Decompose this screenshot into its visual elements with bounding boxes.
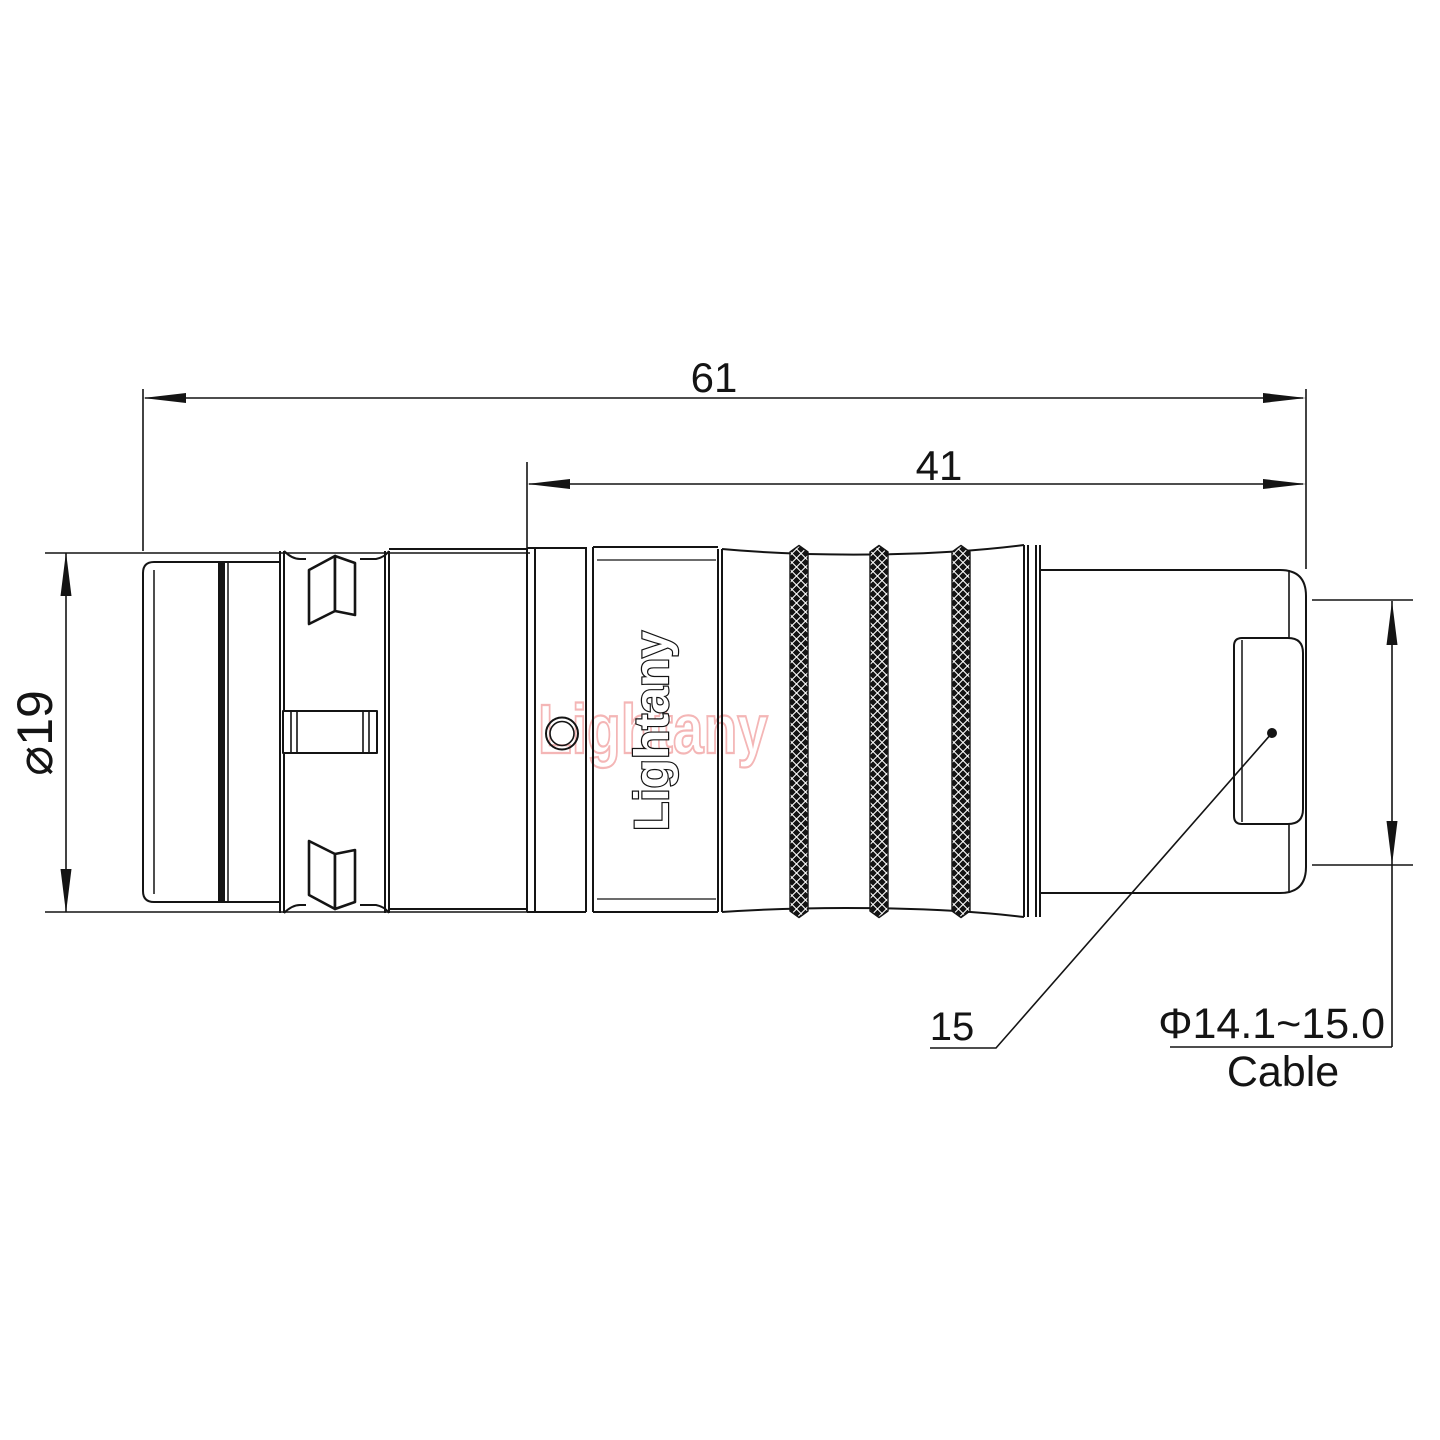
label-rear-length: 41 — [916, 442, 963, 489]
brand-engraving-text: Lightany — [626, 631, 679, 831]
bayonet-pin-top — [309, 556, 355, 624]
label-cable: Cable — [1227, 1048, 1339, 1096]
nut-rear-flange — [1024, 545, 1040, 917]
knurl-bands — [790, 546, 970, 918]
knurled-nut — [722, 545, 1040, 918]
front-shell — [143, 562, 280, 902]
rear-barrel — [1040, 570, 1306, 893]
front-shell-black-band — [218, 562, 225, 902]
front-shell-outline — [143, 562, 280, 902]
guide-slot — [283, 711, 377, 753]
label-overall-length: 61 — [691, 354, 738, 401]
dim-61 — [143, 389, 1306, 569]
label-cable-range: Φ14.1~15.0 — [1158, 1000, 1385, 1048]
knurl-band-2 — [870, 546, 888, 918]
connector-technical-drawing: Lightany — [0, 0, 1440, 1440]
bayonet-pin-bottom — [309, 841, 355, 909]
step-ring — [527, 548, 535, 912]
bayonet-section — [283, 551, 389, 913]
knurl-band-1 — [790, 546, 808, 918]
label-body-diameter: ⌀19 — [7, 690, 63, 776]
flange-ring-b — [385, 551, 389, 913]
sleeve-section — [389, 549, 527, 909]
label-boot-callout: 15 — [930, 1005, 975, 1049]
knurl-band-3 — [952, 546, 970, 918]
drawing-canvas: Lightany — [0, 0, 1440, 1440]
